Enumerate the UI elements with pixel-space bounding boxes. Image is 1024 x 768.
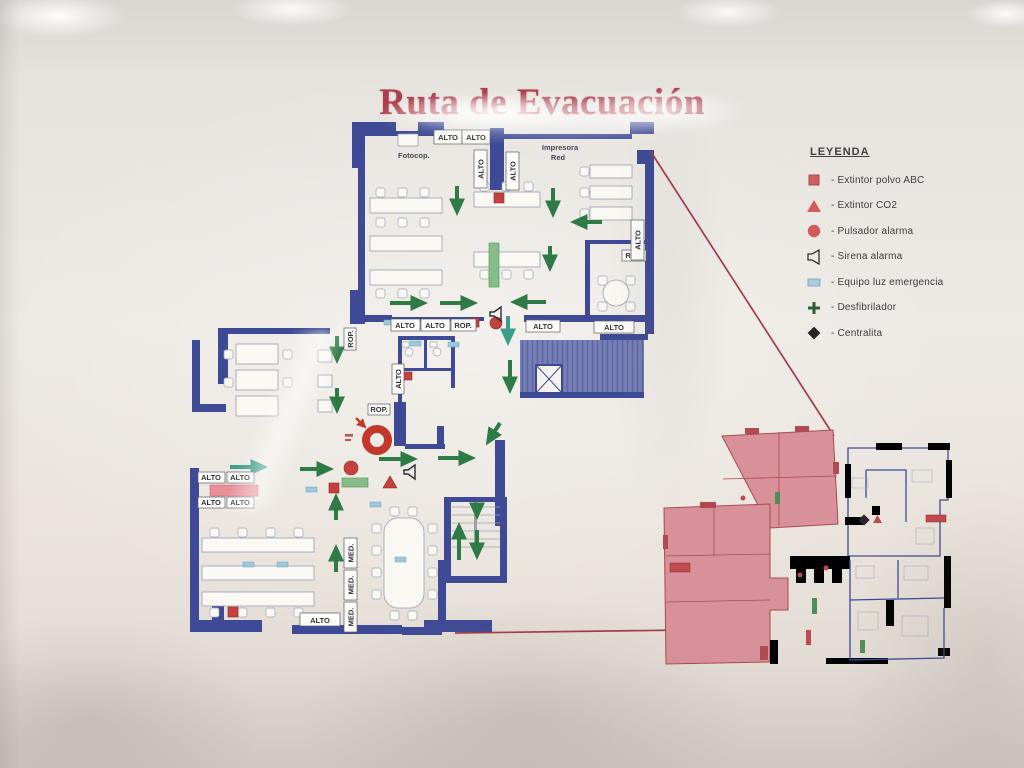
svg-text:ALTO: ALTO [634,230,643,250]
framed-evacuation-poster-photo: Ruta de Evacuación [0,0,1024,768]
alarm-button-icon [806,223,822,239]
building-overview-minimap [663,426,952,664]
route-connector-lines [455,152,834,633]
defibrillator-icon [806,300,822,316]
svg-text:ALTO: ALTO [425,321,445,330]
svg-text:ALTO: ALTO [477,159,486,179]
legend-item-sirena: - Sirena alarma [806,249,981,265]
fotocop-label: Fotocop. [398,151,430,160]
legend-item-centralita: - Centralita [806,325,981,341]
svg-text:ROP.: ROP. [454,321,471,330]
svg-text:MED.: MED. [347,544,356,563]
svg-text:ALTO: ALTO [604,323,624,332]
diagonal-glare-streak [170,330,390,510]
legend-item-extintor-abc: - Extintor polvo ABC [806,172,981,188]
legend-item-pulsador: - Pulsador alarma [806,223,981,239]
legend-item-desfibrilador: - Desfibrilador [806,300,981,316]
siren-icon [806,249,822,265]
svg-text:ALTO: ALTO [395,321,415,330]
centralita-icon [806,325,822,341]
extinguisher-abc-icon [404,372,412,380]
emergency-light-icon [277,562,288,567]
legend-heading: LEYENDA [810,146,981,158]
legend: LEYENDA - Extintor polvo ABC - Extintor … [806,146,981,351]
impresora-label-1: Impresora [542,143,579,152]
evacuation-floor-plan: ALTO ALTO ALTO ALTO ROP. ALTO ALTO ALTO … [0,0,1024,768]
siren-icon [404,465,415,479]
extinguisher-abc-icon [228,607,238,617]
emergency-light-icon [448,342,459,347]
co2-extinguisher-icon [806,198,822,214]
svg-text:ALTO: ALTO [310,616,330,625]
emergency-light-icon [806,274,822,290]
svg-text:ALTO: ALTO [438,133,458,142]
svg-text:MED.: MED. [347,576,356,595]
emergency-light-icon [410,341,421,346]
svg-text:ALTO: ALTO [533,322,553,331]
svg-text:MED.: MED. [347,608,356,627]
svg-text:ALTO: ALTO [509,161,518,181]
legend-item-extintor-co2: - Extintor CO2 [806,198,981,214]
svg-text:ALTO: ALTO [466,133,486,142]
svg-text:ALTO: ALTO [394,369,403,389]
impresora-label-2: Red [551,153,566,162]
extinguisher-abc-icon [494,193,504,203]
emergency-light-icon [395,557,406,562]
legend-item-luz-emergencia: - Equipo luz emergencia [806,274,981,290]
co2-extinguisher-icon [873,515,882,523]
extinguisher-abc-icon [806,172,822,188]
minimap-highlighted-zone [663,426,839,664]
emergency-light-icon [243,562,254,567]
green-cabinet [489,243,499,287]
alarm-button-icon [490,317,502,329]
